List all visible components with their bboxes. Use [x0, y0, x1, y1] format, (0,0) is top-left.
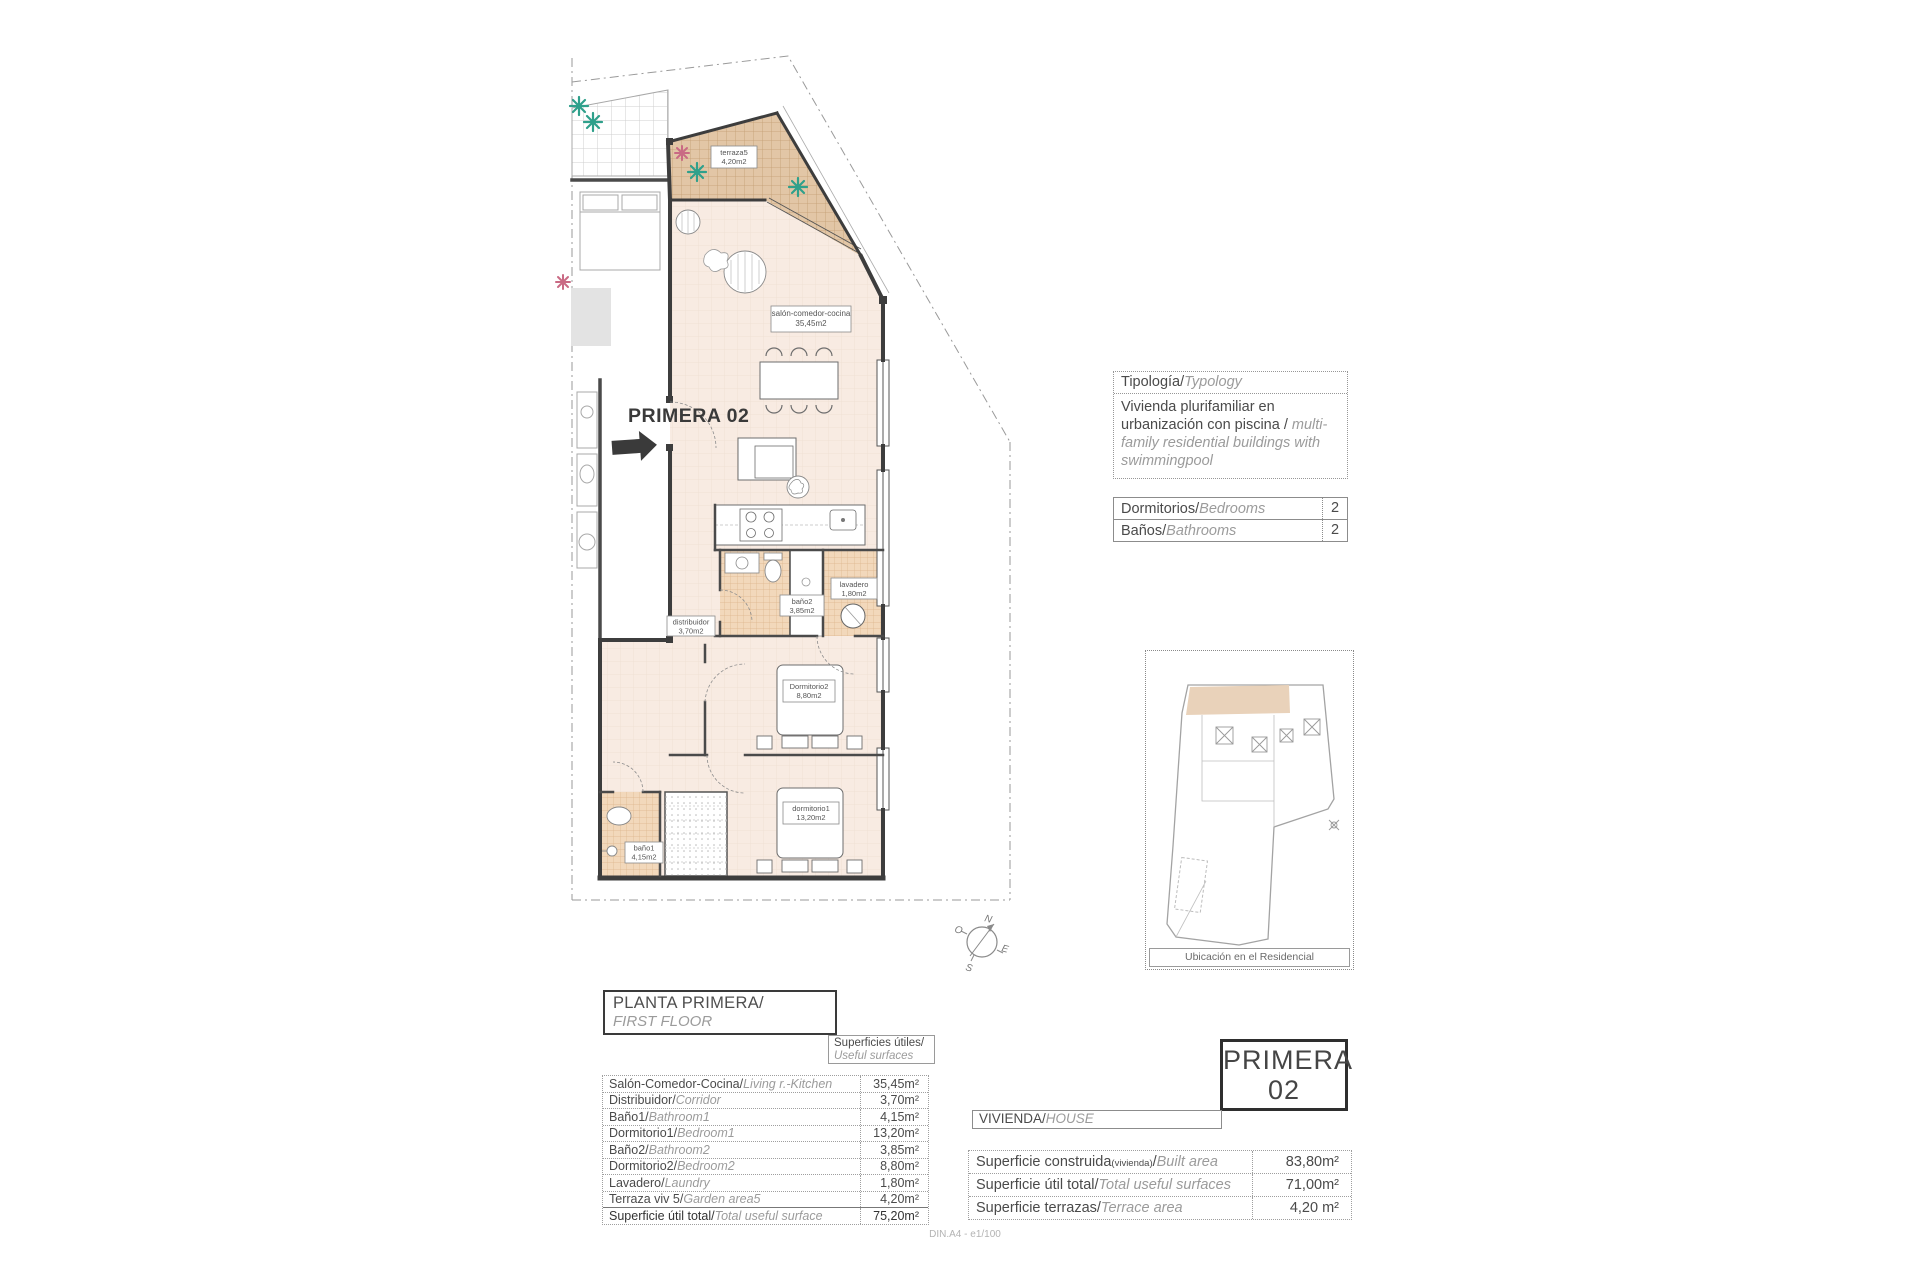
- unit-number: 02: [1223, 1075, 1345, 1105]
- compass-rose-icon: N E S O: [953, 913, 1010, 974]
- plan-sheet: { "page": { "footer": "DIN.A4 - e1/100" …: [0, 0, 1920, 1280]
- table-row: Baños/Bathrooms 2: [1114, 519, 1347, 541]
- bathroom1: [600, 792, 660, 876]
- typology-box: Tipología/Typology Vivienda plurifamilia…: [1113, 371, 1348, 479]
- svg-text:8,80m2: 8,80m2: [796, 691, 821, 700]
- table-row: Terraza viv 5/Garden area54,20m²: [603, 1191, 928, 1208]
- table-row: Lavadero/Laundry1,80m²: [603, 1174, 928, 1191]
- useful-surfaces-box: Superficies útiles/ Useful surfaces: [828, 1035, 935, 1064]
- bedroom1-label: dormitorio1: [792, 804, 830, 813]
- table-row: Dormitorio1/Bedroom113,20m²: [603, 1125, 928, 1142]
- table-row: Superficie terrazas/Terrace area 4,20 m²: [969, 1196, 1351, 1219]
- svg-text:4,20m2: 4,20m2: [721, 157, 746, 166]
- unit-callout-label: PRIMERA 02: [628, 405, 749, 427]
- svg-text:N: N: [983, 913, 994, 926]
- svg-text:1,80m2: 1,80m2: [841, 589, 866, 598]
- bedroom2-label: Dormitorio2: [790, 682, 829, 691]
- floor-plan-drawing: terraza5 4,20m2 salón-comedor-cocina 35,…: [555, 50, 1025, 1010]
- svg-text:O: O: [953, 924, 964, 937]
- bathrooms-count: 2: [1322, 520, 1347, 541]
- svg-text:13,20m2: 13,20m2: [796, 813, 825, 822]
- map-caption: Ubicación en el Residencial: [1149, 948, 1350, 967]
- bathroom1-label: baño1: [634, 844, 655, 853]
- floor-title-box: PLANTA PRIMERA/ FIRST FLOOR: [603, 990, 837, 1035]
- site-plan-drawing: [1146, 651, 1353, 969]
- typology-body: Vivienda plurifamiliar en urbanización c…: [1114, 394, 1347, 478]
- svg-text:E: E: [1000, 943, 1010, 955]
- rooms-count-table: Dormitorios/Bedrooms 2 Baños/Bathrooms 2: [1113, 497, 1348, 542]
- unit-name: PRIMERA: [1223, 1045, 1345, 1075]
- table-row: Dormitorios/Bedrooms 2: [1114, 498, 1347, 519]
- bedrooms-count: 2: [1322, 498, 1347, 519]
- table-row: Distribuidor/Corridor3,70m²: [603, 1092, 928, 1109]
- typology-header: Tipología/Typology: [1114, 372, 1347, 394]
- table-row: Baño1/Bathroom14,15m²: [603, 1108, 928, 1125]
- bathroom2: [720, 550, 823, 636]
- floor-title-es: PLANTA PRIMERA/: [613, 993, 835, 1013]
- svg-text:35,45m2: 35,45m2: [795, 319, 827, 328]
- house-surfaces-table: Superficie construida(vivienda)/Built ar…: [968, 1150, 1352, 1220]
- sheet-scale-note: DIN.A4 - e1/100: [890, 1229, 1040, 1240]
- table-row: Baño2/Bathroom23,85m²: [603, 1141, 928, 1158]
- stairwell: [665, 792, 727, 876]
- bathroom2-label: baño2: [792, 597, 813, 606]
- table-row: Superficie construida(vivienda)/Built ar…: [969, 1151, 1351, 1173]
- floor-surfaces-table: Salón-Comedor-Cocina/Living r.-Kitchen35…: [602, 1075, 929, 1225]
- unit-number-card: PRIMERA 02: [1220, 1039, 1348, 1111]
- svg-text:4,15m2: 4,15m2: [631, 853, 656, 862]
- laundry-label: lavadero: [840, 580, 869, 589]
- unit-location-highlight: [1186, 685, 1290, 715]
- house-header-bar: VIVIENDA/HOUSE: [972, 1110, 1222, 1129]
- floor-title-en: FIRST FLOOR: [613, 1013, 835, 1031]
- mini-compass-icon: [1329, 820, 1339, 830]
- location-map: Ubicación en el Residencial: [1145, 650, 1354, 970]
- neighbour-unit: [571, 90, 668, 568]
- kitchen-counter: [715, 505, 865, 545]
- svg-text:3,70m2: 3,70m2: [678, 627, 703, 636]
- svg-text:3,85m2: 3,85m2: [789, 606, 814, 615]
- table-row: Salón-Comedor-Cocina/Living r.-Kitchen35…: [603, 1076, 928, 1092]
- terrace-label: terraza5: [720, 148, 748, 157]
- corridor-label: distribuidor: [673, 618, 710, 627]
- table-row: Superficie útil total/Total useful surfa…: [969, 1173, 1351, 1196]
- living-label: salón-comedor-cocina: [772, 309, 851, 318]
- entry-arrow-icon: [611, 430, 658, 463]
- table-row: Dormitorio2/Bedroom28,80m²: [603, 1158, 928, 1175]
- svg-text:S: S: [964, 962, 974, 974]
- table-row-total: Superficie útil total/Total useful surfa…: [603, 1207, 928, 1224]
